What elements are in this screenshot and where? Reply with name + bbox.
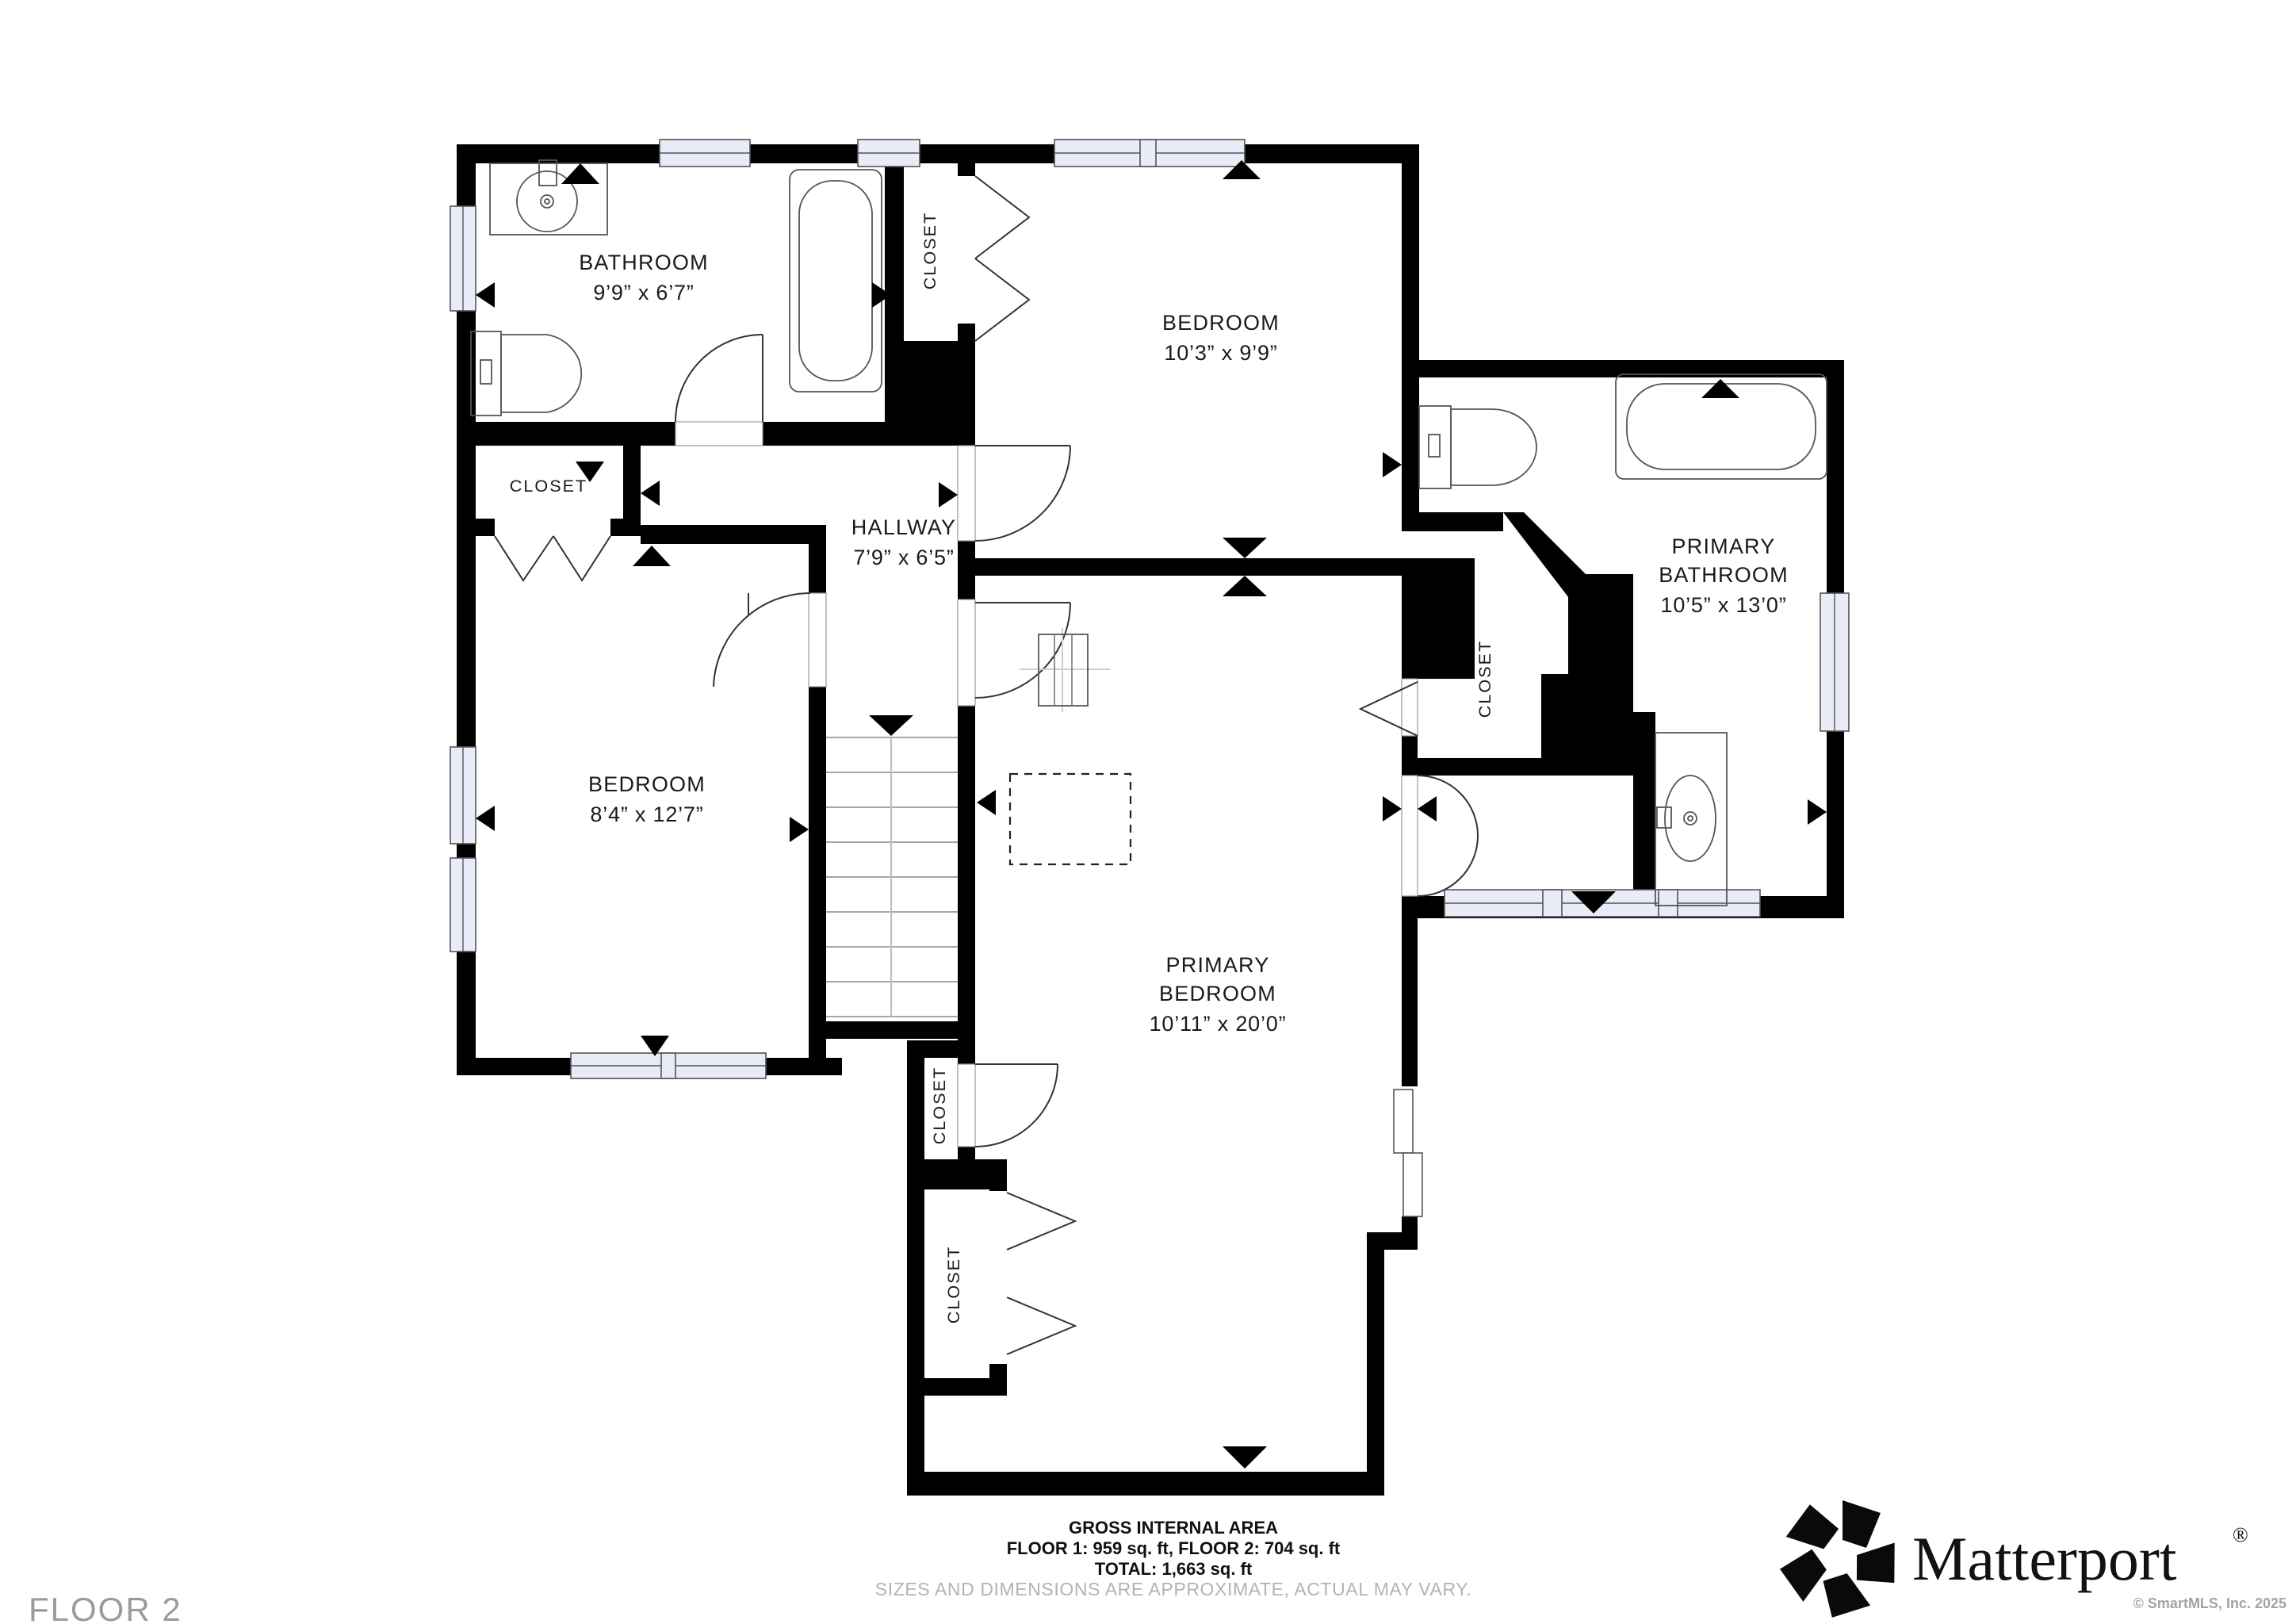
floorplan-page: BATHROOM 9’9” x 6’7” BEDROOM 10’3” x 9’9… [0, 0, 2296, 1624]
branding: Matterport ® © SmartMLS, Inc. 2025 [1773, 1500, 2286, 1624]
bedroom-left-label: BEDROOM [588, 772, 706, 796]
marker-down-icon [1223, 1446, 1267, 1469]
marker-right-icon [1808, 799, 1827, 825]
floor-label: FLOOR 2 [29, 1591, 182, 1624]
gross-area-floors: FLOOR 1: 959 sq. ft, FLOOR 2: 704 sq. ft [1007, 1538, 1341, 1558]
gross-area-title: GROSS INTERNAL AREA [1069, 1518, 1278, 1538]
bedroom-left-dims: 8’4” x 12’7” [590, 802, 703, 826]
marker-right-icon [1383, 452, 1402, 477]
primary-bedroom-dims: 10’11” x 20’0” [1150, 1012, 1287, 1036]
marker-down-icon [1223, 538, 1267, 558]
bathtub-icon [790, 170, 882, 392]
closet-big-bifold [1007, 1193, 1075, 1250]
disclaimer: SIZES AND DIMENSIONS ARE APPROXIMATE, AC… [875, 1579, 1471, 1599]
utility-square-icon [1020, 628, 1110, 712]
marker-up-icon [1701, 379, 1739, 398]
bedroom-top-dims: 10’3” x 9’9” [1164, 341, 1277, 365]
toilet-icon [471, 331, 581, 416]
closet-left-label: CLOSET [510, 476, 587, 496]
staircase [826, 737, 958, 1017]
closet-top-label: CLOSET [920, 212, 939, 289]
marker-left-icon [1418, 796, 1437, 822]
marker-right-icon [1383, 796, 1402, 822]
primary-bedroom-label-1: PRIMARY [1166, 953, 1270, 977]
closet-small-door-arc [975, 1064, 1058, 1147]
marker-left-icon [476, 806, 495, 831]
hallway-label: HALLWAY [851, 515, 956, 539]
primary-sink-icon [1655, 733, 1727, 906]
closet-left-bifold [495, 536, 553, 580]
bathroom-label: BATHROOM [579, 251, 709, 274]
closet-top-bifold [975, 176, 1029, 259]
marker-left-icon [476, 282, 495, 308]
primary-bedroom-door-arc [975, 603, 1070, 698]
bathroom-door-arc [675, 335, 763, 422]
smartmls-copyright: © SmartMLS, Inc. 2025 [2133, 1595, 2286, 1611]
marker-down-icon [869, 715, 913, 736]
marker-up-icon [633, 546, 671, 566]
marker-up-icon [561, 163, 599, 184]
primary-bedroom-label-2: BEDROOM [1159, 982, 1276, 1005]
matterport-logo-icon [1773, 1500, 1907, 1624]
bathroom-dims: 9’9” x 6’7” [593, 281, 694, 304]
marker-right-icon [939, 482, 958, 507]
primary-bathroom-label-2: BATHROOM [1659, 563, 1789, 587]
bedroom-top-door-arc [975, 446, 1070, 541]
registered-mark: ® [2233, 1523, 2248, 1546]
gross-area-total: TOTAL: 1,663 sq. ft [1095, 1559, 1253, 1579]
closet-small-label: CLOSET [929, 1067, 949, 1144]
matterport-wordmark: Matterport [1912, 1524, 2177, 1593]
marker-left-icon [641, 481, 660, 506]
bedroom-left-door-arc [714, 593, 810, 687]
sink-icon [490, 160, 607, 235]
primary-bathroom-dims: 10’5” x 13’0” [1661, 593, 1787, 617]
dashed-ceiling-outline [1010, 774, 1131, 864]
footer: GROSS INTERNAL AREA FLOOR 1: 959 sq. ft,… [29, 1518, 1471, 1624]
bedroom-top-label: BEDROOM [1162, 311, 1280, 335]
marker-right-icon [790, 817, 809, 842]
primary-bathroom-label-1: PRIMARY [1672, 534, 1776, 558]
floorplan-svg: BATHROOM 9’9” x 6’7” BEDROOM 10’3” x 9’9… [0, 0, 2296, 1624]
closet-primary-label: CLOSET [1475, 640, 1494, 718]
marker-left-icon [977, 790, 996, 815]
hallway-dims: 7’9” x 6’5” [853, 546, 954, 569]
primary-toilet-icon [1419, 406, 1536, 488]
marker-up-icon [1223, 576, 1267, 596]
closet-big-label: CLOSET [943, 1246, 963, 1323]
